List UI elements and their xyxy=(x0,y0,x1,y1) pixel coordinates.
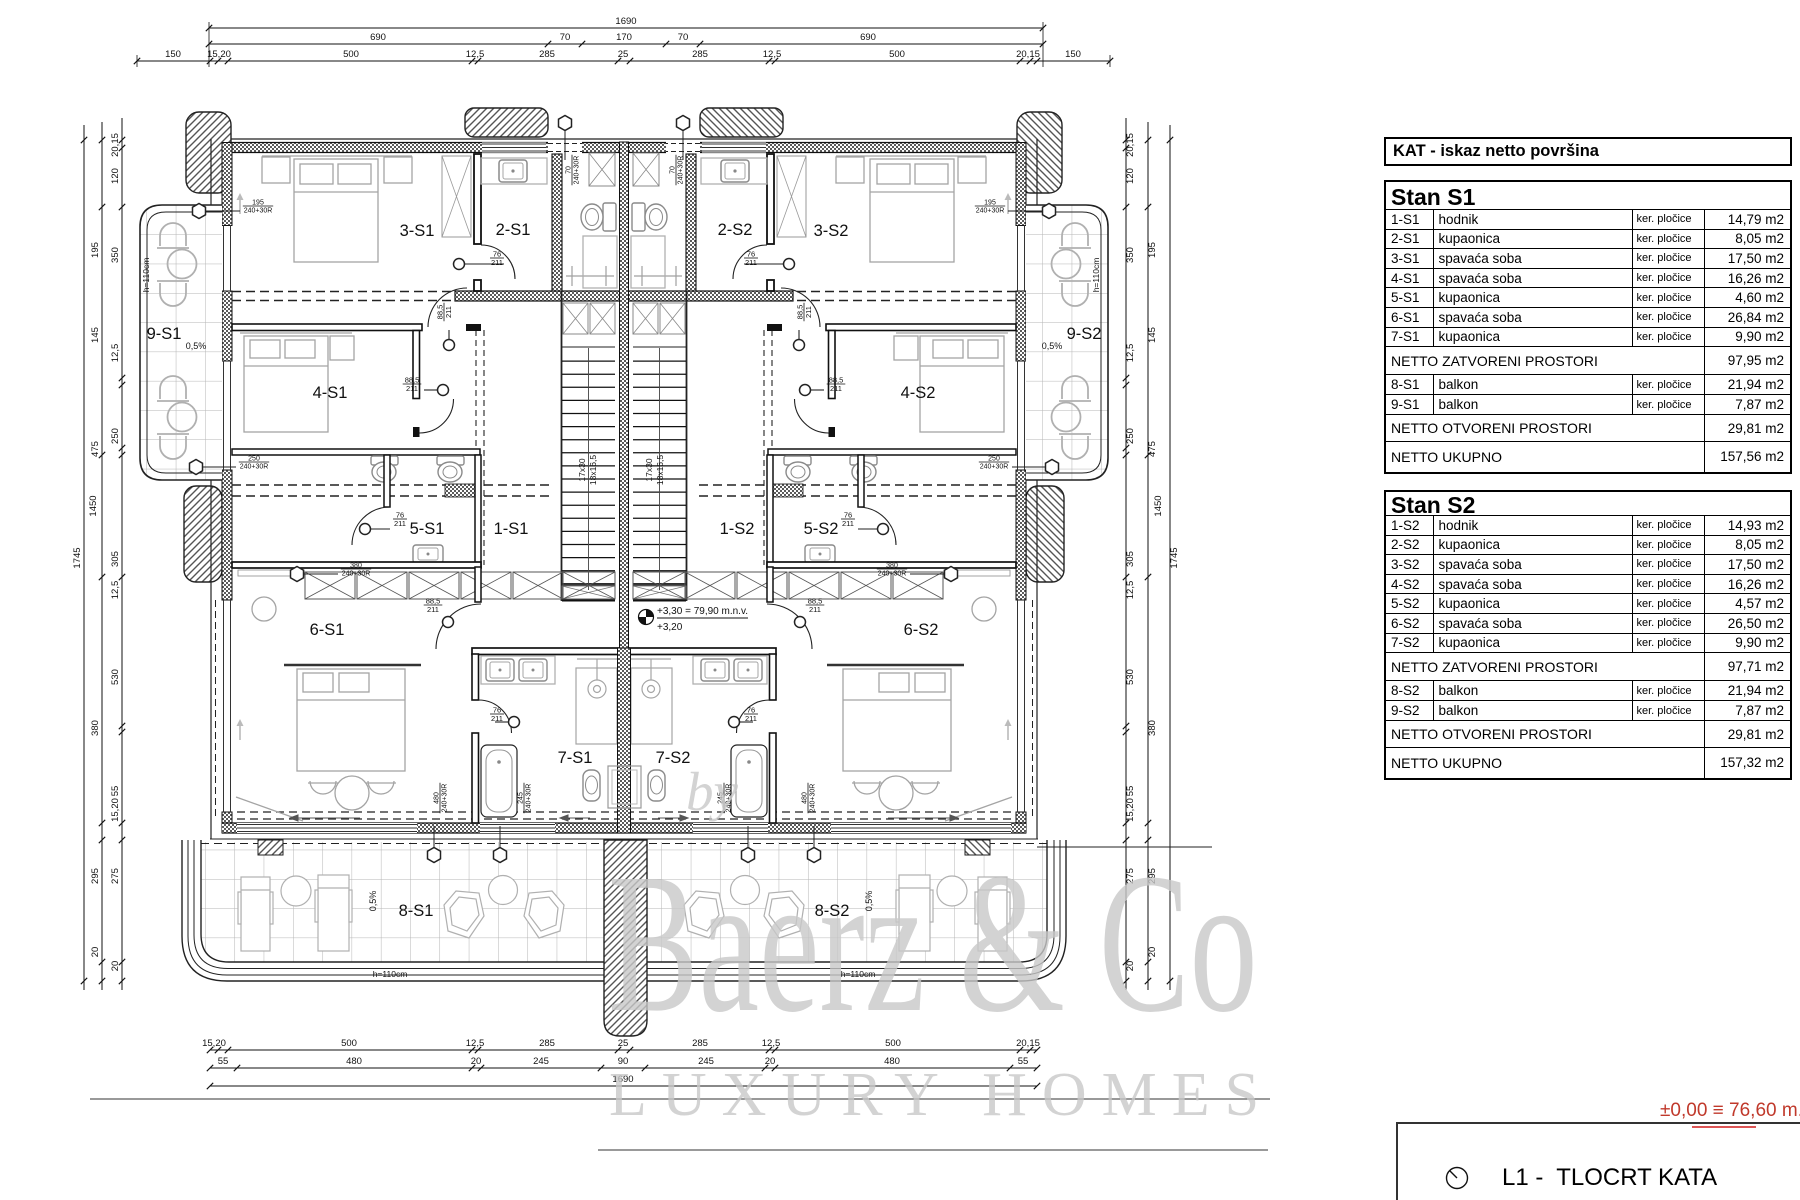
svg-text:500: 500 xyxy=(343,49,359,60)
svg-text:305: 305 xyxy=(110,551,121,567)
svg-text:211: 211 xyxy=(406,384,418,393)
svg-text:4-S1: 4-S1 xyxy=(313,384,348,402)
svg-text:295: 295 xyxy=(90,868,101,884)
svg-text:240+30R: 240+30R xyxy=(976,208,1005,215)
svg-text:3-S2: 3-S2 xyxy=(814,222,849,240)
svg-text:70: 70 xyxy=(560,32,571,43)
svg-text:20: 20 xyxy=(110,961,121,972)
svg-text:12,5: 12,5 xyxy=(110,581,121,600)
svg-text:0,5%: 0,5% xyxy=(186,341,207,351)
svg-text:500: 500 xyxy=(889,49,905,60)
svg-text:1450: 1450 xyxy=(88,495,99,516)
svg-text:240+30R: 240+30R xyxy=(244,208,273,215)
svg-text:195: 195 xyxy=(1147,242,1158,258)
svg-text:240+30R: 240+30R xyxy=(526,784,533,813)
svg-text:305: 305 xyxy=(1125,551,1136,567)
svg-text:380: 380 xyxy=(1147,720,1158,736)
svg-text:240+30R: 240+30R xyxy=(980,464,1009,471)
svg-text:211: 211 xyxy=(427,605,439,614)
svg-text:12,5: 12,5 xyxy=(466,49,485,60)
svg-text:20: 20 xyxy=(471,1056,482,1067)
svg-text:120: 120 xyxy=(110,168,121,184)
svg-text:475: 475 xyxy=(1147,441,1158,457)
svg-text:245: 245 xyxy=(533,1056,549,1067)
svg-text:250: 250 xyxy=(248,456,260,463)
svg-text:18x16,5: 18x16,5 xyxy=(655,455,665,486)
svg-text:20,15: 20,15 xyxy=(1125,133,1136,157)
svg-text:120: 120 xyxy=(1125,168,1136,184)
svg-text:h=110cm: h=110cm xyxy=(373,969,408,979)
svg-text:1690: 1690 xyxy=(615,16,636,27)
svg-text:530: 530 xyxy=(110,669,121,685)
svg-text:211: 211 xyxy=(745,714,757,723)
svg-text:25: 25 xyxy=(618,49,629,60)
svg-text:195: 195 xyxy=(90,242,101,258)
svg-text:4-S2: 4-S2 xyxy=(901,384,936,402)
svg-text:9-S1: 9-S1 xyxy=(147,325,182,343)
svg-text:12,5: 12,5 xyxy=(110,344,121,363)
svg-text:55: 55 xyxy=(218,1056,229,1067)
svg-text:1450: 1450 xyxy=(1153,495,1164,516)
svg-text:480: 480 xyxy=(346,1056,362,1067)
svg-text:12,5: 12,5 xyxy=(1125,344,1136,363)
svg-text:8-S1: 8-S1 xyxy=(399,902,434,920)
svg-text:145: 145 xyxy=(90,327,101,343)
svg-text:211: 211 xyxy=(444,306,453,318)
svg-text:240+30R: 240+30R xyxy=(442,784,449,813)
svg-text:70: 70 xyxy=(678,32,689,43)
svg-text:240+30R: 240+30R xyxy=(240,464,269,471)
svg-text:480: 480 xyxy=(802,792,809,804)
svg-text:5-S1: 5-S1 xyxy=(410,520,445,538)
svg-text:240+30R: 240+30R xyxy=(810,784,817,813)
svg-text:170: 170 xyxy=(616,32,632,43)
svg-text:1745: 1745 xyxy=(72,547,83,568)
svg-text:17x30: 17x30 xyxy=(577,458,587,481)
svg-text:12,5: 12,5 xyxy=(763,49,782,60)
svg-text:245: 245 xyxy=(518,792,525,804)
svg-text:240+30R: 240+30R xyxy=(878,571,907,578)
svg-text:20,15: 20,15 xyxy=(110,133,121,157)
svg-text:15,20: 15,20 xyxy=(202,1038,226,1049)
svg-text:690: 690 xyxy=(860,32,876,43)
svg-text:380: 380 xyxy=(90,720,101,736)
svg-text:275: 275 xyxy=(110,868,121,884)
svg-text:+3,30 = 79,90 m.n.v.: +3,30 = 79,90 m.n.v. xyxy=(657,606,748,617)
svg-text:211: 211 xyxy=(491,258,503,267)
svg-text:15,20: 15,20 xyxy=(110,798,121,822)
svg-text:2-S2: 2-S2 xyxy=(718,221,753,239)
svg-text:6-S2: 6-S2 xyxy=(904,621,939,639)
svg-text:195: 195 xyxy=(252,200,264,207)
svg-text:70: 70 xyxy=(670,166,677,174)
svg-text:12,5: 12,5 xyxy=(1125,581,1136,600)
svg-text:+3,20: +3,20 xyxy=(657,622,683,633)
svg-text:211: 211 xyxy=(491,714,503,723)
svg-text:211: 211 xyxy=(842,519,854,528)
svg-text:18x16,5: 18x16,5 xyxy=(588,455,598,486)
svg-text:1-S1: 1-S1 xyxy=(494,520,529,538)
svg-text:690: 690 xyxy=(370,32,386,43)
svg-text:55: 55 xyxy=(110,786,121,797)
svg-text:15,20: 15,20 xyxy=(1125,798,1136,822)
svg-text:250: 250 xyxy=(110,428,121,444)
svg-text:7-S1: 7-S1 xyxy=(558,749,593,767)
svg-text:211: 211 xyxy=(745,258,757,267)
svg-text:250: 250 xyxy=(988,456,1000,463)
svg-text:15,20: 15,20 xyxy=(207,49,231,60)
svg-text:20,15: 20,15 xyxy=(1016,49,1040,60)
svg-text:211: 211 xyxy=(809,605,821,614)
svg-text:3-S1: 3-S1 xyxy=(400,222,435,240)
svg-text:12,5: 12,5 xyxy=(466,1038,485,1049)
svg-text:2-S1: 2-S1 xyxy=(496,221,531,239)
svg-text:380: 380 xyxy=(350,563,362,570)
svg-text:250: 250 xyxy=(1125,428,1136,444)
svg-text:475: 475 xyxy=(90,441,101,457)
svg-text:480: 480 xyxy=(434,792,441,804)
svg-text:530: 530 xyxy=(1125,669,1136,685)
svg-text:240+30R: 240+30R xyxy=(574,156,581,185)
svg-text:500: 500 xyxy=(341,1038,357,1049)
svg-text:17x30: 17x30 xyxy=(644,458,654,481)
svg-text:150: 150 xyxy=(1065,49,1081,60)
svg-text:285: 285 xyxy=(539,49,555,60)
svg-text:1-S2: 1-S2 xyxy=(720,520,755,538)
svg-text:6-S1: 6-S1 xyxy=(310,621,345,639)
svg-text:145: 145 xyxy=(1147,327,1158,343)
svg-text:350: 350 xyxy=(1125,247,1136,263)
svg-text:211: 211 xyxy=(804,306,813,318)
svg-text:h=110cm: h=110cm xyxy=(141,258,151,293)
svg-text:380: 380 xyxy=(886,563,898,570)
svg-text:70: 70 xyxy=(566,166,573,174)
svg-text:350: 350 xyxy=(110,247,121,263)
svg-text:9-S2: 9-S2 xyxy=(1067,325,1102,343)
svg-text:211: 211 xyxy=(830,384,842,393)
svg-text:20: 20 xyxy=(90,947,101,958)
svg-text:h=110cm: h=110cm xyxy=(1091,258,1101,293)
svg-text:0,5%: 0,5% xyxy=(1042,341,1063,351)
svg-text:55: 55 xyxy=(1125,786,1136,797)
svg-text:195: 195 xyxy=(984,200,996,207)
svg-text:0,5%: 0,5% xyxy=(368,891,378,912)
svg-text:240+30R: 240+30R xyxy=(678,156,685,185)
svg-text:5-S2: 5-S2 xyxy=(804,520,839,538)
svg-text:285: 285 xyxy=(692,49,708,60)
svg-text:240+30R: 240+30R xyxy=(342,571,371,578)
svg-text:150: 150 xyxy=(165,49,181,60)
svg-text:1745: 1745 xyxy=(1169,547,1180,568)
svg-text:211: 211 xyxy=(394,519,406,528)
svg-text:285: 285 xyxy=(539,1038,555,1049)
